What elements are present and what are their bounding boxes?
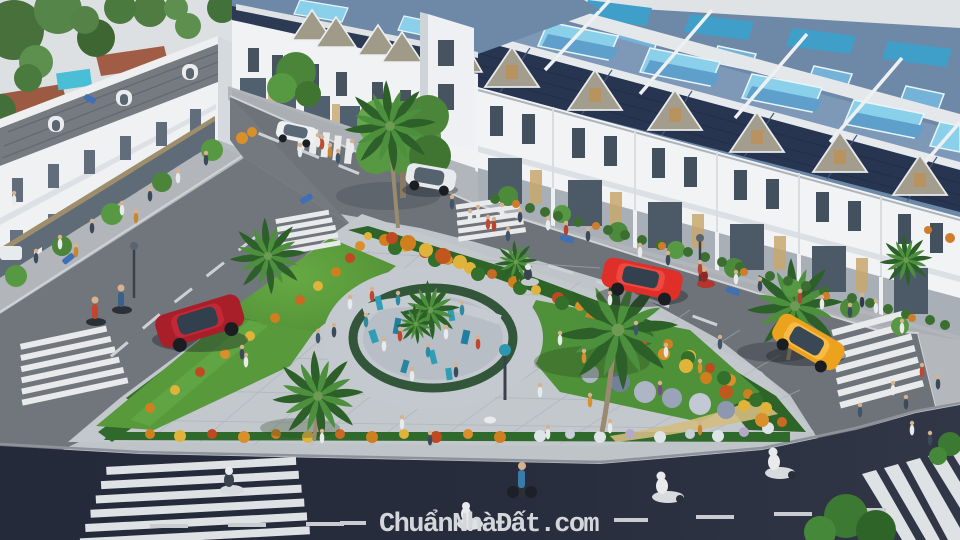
svg-text:ChuẩnNhàĐất.com: ChuẩnNhàĐất.com [379, 508, 599, 540]
